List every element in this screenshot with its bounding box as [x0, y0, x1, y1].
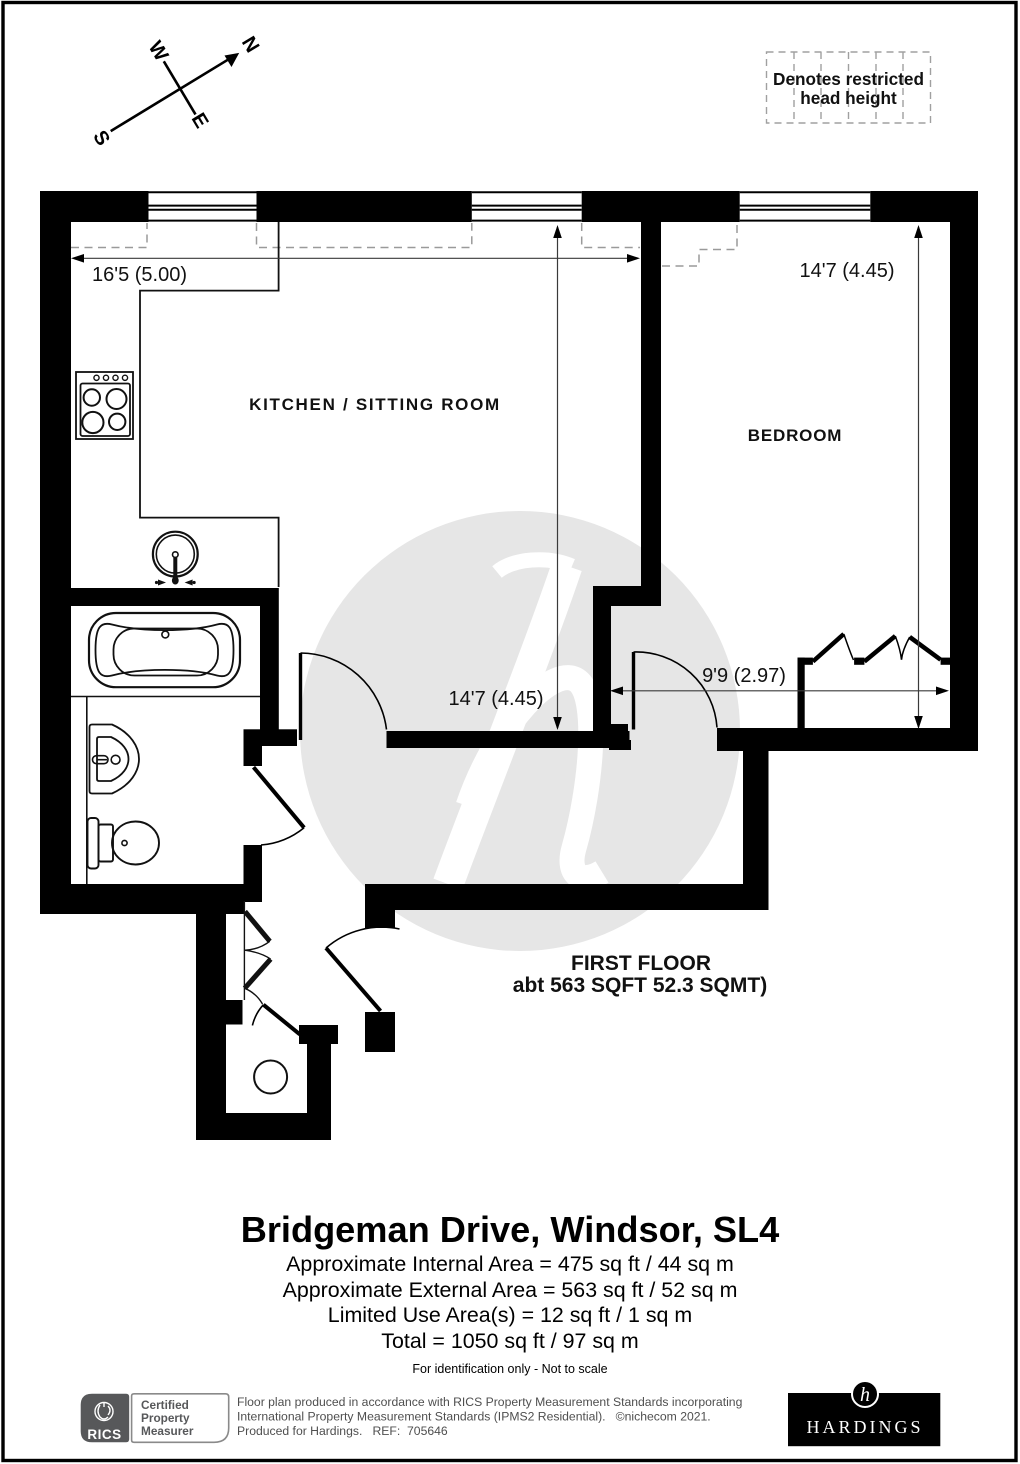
svg-text:Approximate External Area = 56: Approximate External Area = 563 sq ft / … — [283, 1278, 738, 1302]
svg-text:14'7 (4.45): 14'7 (4.45) — [800, 260, 895, 282]
svg-text:Total = 1050 sq ft / 97 sq m: Total = 1050 sq ft / 97 sq m — [381, 1329, 638, 1353]
svg-text:Certified: Certified — [141, 1398, 189, 1412]
svg-text:Measurer: Measurer — [141, 1424, 194, 1438]
svg-text:Bridgeman Drive, Windsor, SL4: Bridgeman Drive, Windsor, SL4 — [241, 1209, 780, 1250]
svg-text:KITCHEN / SITTING ROOM: KITCHEN / SITTING ROOM — [249, 395, 501, 414]
svg-text:RICS: RICS — [87, 1427, 121, 1442]
svg-text:h: h — [860, 1384, 870, 1406]
svg-text:FIRST FLOOR: FIRST FLOOR — [571, 952, 711, 975]
svg-text:14'7 (4.45): 14'7 (4.45) — [449, 688, 544, 710]
svg-text:BEDROOM: BEDROOM — [748, 426, 842, 445]
svg-text:head height: head height — [800, 88, 897, 108]
svg-text:16'5 (5.00): 16'5 (5.00) — [92, 264, 187, 286]
svg-text:Property: Property — [141, 1411, 190, 1425]
svg-text:For identification only - Not: For identification only - Not to scale — [412, 1362, 607, 1376]
svg-text:Approximate Internal Area = 47: Approximate Internal Area = 475 sq ft / … — [286, 1252, 734, 1276]
svg-text:International Property Measure: International Property Measurement Stand… — [237, 1410, 711, 1424]
svg-text:Denotes restricted: Denotes restricted — [773, 69, 924, 89]
svg-text:HARDINGS: HARDINGS — [806, 1417, 923, 1437]
svg-text:Limited Use Area(s) = 12 sq ft: Limited Use Area(s) = 12 sq ft / 1 sq m — [328, 1303, 692, 1327]
svg-text:9'9 (2.97): 9'9 (2.97) — [702, 665, 786, 687]
svg-text:Produced for Hardings. REF:: Produced for Hardings. REF: 705646 — [237, 1424, 448, 1438]
svg-text:abt 563 SQFT 52.3 SQMT): abt 563 SQFT 52.3 SQMT) — [513, 974, 767, 997]
svg-text:Floor plan produced in accorda: Floor plan produced in accordance with R… — [237, 1395, 742, 1409]
